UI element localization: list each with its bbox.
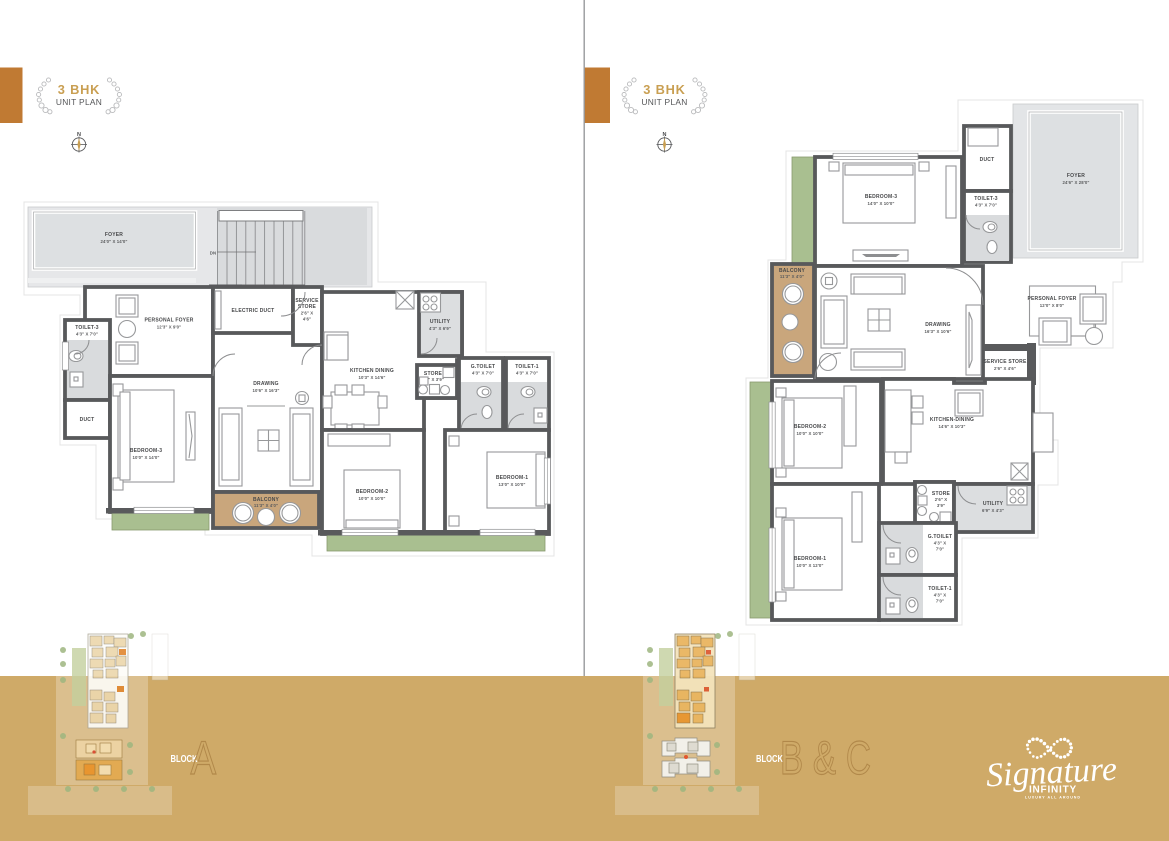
svg-text:2'6" X 4'6": 2'6" X 4'6": [994, 366, 1016, 371]
svg-text:12'0" X 8'0": 12'0" X 8'0": [1040, 303, 1065, 308]
svg-text:10'6" X 16'3": 10'6" X 16'3": [252, 388, 279, 393]
svg-text:DUCT: DUCT: [980, 157, 995, 163]
svg-text:BEDROOM-1: BEDROOM-1: [794, 556, 826, 562]
svg-text:10'0" X 10'0": 10'0" X 10'0": [358, 496, 385, 501]
svg-text:24'6" X 28'0": 24'6" X 28'0": [1062, 180, 1089, 185]
svg-text:2'6" X: 2'6" X: [935, 497, 948, 502]
svg-text:BEDROOM-3: BEDROOM-3: [130, 448, 162, 454]
svg-text:4'3" X: 4'3" X: [934, 541, 947, 546]
svg-text:TOILET-3: TOILET-3: [75, 325, 98, 331]
svg-text:A: A: [191, 732, 217, 784]
svg-text:2'6" X: 2'6" X: [301, 311, 314, 316]
svg-text:4'3" X 7'0": 4'3" X 7'0": [76, 332, 98, 337]
svg-text:7'0": 7'0": [936, 599, 944, 604]
svg-text:DRAWING: DRAWING: [925, 322, 951, 328]
svg-text:UTILITY: UTILITY: [430, 319, 451, 325]
svg-text:14'6" X 10'3": 14'6" X 10'3": [938, 424, 965, 429]
svg-text:4'6": 4'6": [303, 317, 311, 322]
svg-text:ELECTRIC DUCT: ELECTRIC DUCT: [232, 308, 275, 314]
svg-text:10'3" X 14'6": 10'3" X 14'6": [358, 375, 385, 380]
svg-text:4'3" X 6'9": 4'3" X 6'9": [429, 326, 451, 331]
svg-text:PERSONAL FOYER: PERSONAL FOYER: [144, 318, 193, 324]
svg-text:KITCHEN DINING: KITCHEN DINING: [350, 368, 394, 374]
svg-text:16'3" X 10'6": 16'3" X 10'6": [924, 329, 951, 334]
svg-text:14'0" X 10'0": 14'0" X 10'0": [867, 201, 894, 206]
svg-text:11'3" X 4'0": 11'3" X 4'0": [254, 503, 278, 508]
svg-text:FOYER: FOYER: [1067, 173, 1085, 179]
svg-text:11'3" X 4'0": 11'3" X 4'0": [780, 274, 804, 279]
svg-text:SERVICE STORE: SERVICE STORE: [984, 359, 1027, 365]
svg-text:10'0" X 10'0": 10'0" X 10'0": [796, 431, 823, 436]
svg-text:DN: DN: [210, 251, 216, 256]
svg-text:DRAWING: DRAWING: [253, 381, 279, 387]
svg-text:10'0" X 12'0": 10'0" X 12'0": [796, 563, 823, 568]
svg-text:BEDROOM-2: BEDROOM-2: [356, 489, 388, 495]
svg-text:7'0": 7'0": [936, 547, 944, 552]
svg-text:4'3" X 7'0": 4'3" X 7'0": [472, 371, 494, 376]
svg-text:G.TOILET: G.TOILET: [928, 534, 953, 540]
svg-text:UNIT PLAN: UNIT PLAN: [641, 97, 687, 107]
svg-text:10'0" X 14'0": 10'0" X 14'0": [132, 455, 159, 460]
svg-text:FOYER: FOYER: [105, 232, 123, 238]
svg-text:B & C: B & C: [780, 731, 871, 784]
svg-text:24'0" X 14'0": 24'0" X 14'0": [100, 239, 127, 244]
svg-text:INFINITY: INFINITY: [1029, 785, 1077, 796]
svg-text:UNIT PLAN: UNIT PLAN: [56, 97, 102, 107]
svg-text:6'9" X 4'3": 6'9" X 4'3": [982, 508, 1004, 513]
svg-text:BEDROOM-1: BEDROOM-1: [496, 475, 528, 481]
svg-text:3'9": 3'9": [937, 503, 945, 508]
svg-text:4'3" X: 4'3" X: [934, 593, 947, 598]
svg-text:TOILET-1: TOILET-1: [515, 364, 538, 370]
svg-text:LUXURY ALL AROUND: LUXURY ALL AROUND: [1025, 796, 1081, 800]
svg-text:BEDROOM-2: BEDROOM-2: [794, 424, 826, 430]
svg-text:12'3" X 9'0": 12'3" X 9'0": [157, 325, 182, 330]
svg-text:G.TOILET: G.TOILET: [471, 364, 496, 370]
svg-text:TOILET-3: TOILET-3: [974, 196, 997, 202]
svg-text:UTILITY: UTILITY: [983, 501, 1004, 507]
svg-text:BEDROOM-3: BEDROOM-3: [865, 194, 897, 200]
svg-text:13'0" X 10'0": 13'0" X 10'0": [498, 482, 525, 487]
svg-text:3 BHK: 3 BHK: [643, 82, 685, 97]
svg-text:TOILET-1: TOILET-1: [928, 586, 951, 592]
svg-text:3 BHK: 3 BHK: [58, 82, 100, 97]
svg-text:4'3" X 7'0": 4'3" X 7'0": [516, 371, 538, 376]
svg-text:4'3" X 7'0": 4'3" X 7'0": [975, 203, 997, 208]
svg-text:PERSONAL FOYER: PERSONAL FOYER: [1027, 296, 1076, 302]
svg-text:KITCHEN-DINING: KITCHEN-DINING: [930, 417, 974, 423]
svg-text:DUCT: DUCT: [80, 417, 95, 423]
